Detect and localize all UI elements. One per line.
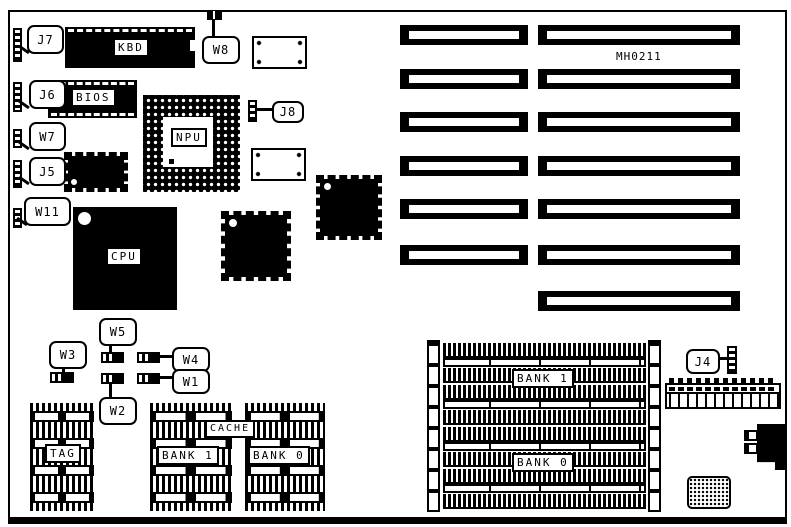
isa-slot-long-1: [538, 25, 740, 45]
memory-bank0-label-text: BANK 0: [517, 457, 569, 468]
cache-label-text: CACHE: [210, 424, 250, 434]
kbd-label: KBD: [113, 38, 149, 57]
callout-j7-label: J7: [37, 34, 53, 46]
isa-slot-short-3: [400, 112, 528, 132]
leader-w8: [212, 19, 215, 37]
cache-bank1-label: BANK 1: [157, 446, 219, 465]
simm-rail-left: [427, 340, 440, 512]
leader-j8: [257, 108, 273, 111]
cache-bank1-label-text: BANK 1: [162, 450, 214, 461]
callout-j4: J4: [686, 349, 720, 374]
memory-bank0-label: BANK 0: [512, 453, 574, 472]
callout-w7-label: W7: [39, 131, 55, 143]
pin-header-j6: [13, 82, 22, 112]
isa-slot-long-3: [538, 112, 740, 132]
memory-bank1-label: BANK 1: [512, 369, 574, 388]
npu-label: NPU: [171, 128, 207, 147]
callout-j4-label: J4: [695, 356, 711, 368]
cache-bank0-label-text: BANK 0: [253, 450, 305, 461]
npu-label-text: NPU: [176, 132, 202, 143]
simm-socket-5: [443, 427, 646, 442]
oscillator-2: [251, 148, 306, 181]
callout-w2-label: W2: [110, 405, 126, 417]
callout-j8: J8: [272, 101, 304, 123]
speaker-component: [687, 476, 731, 509]
callout-j7: J7: [27, 25, 64, 54]
callout-w2: W2: [99, 397, 137, 425]
din-tab-2: [744, 443, 758, 454]
callout-w11-label: W11: [35, 206, 60, 218]
oscillator-1: [252, 36, 307, 69]
simm-module-row-1: [443, 358, 646, 367]
jumper-w2: [101, 373, 124, 384]
pin-header-j5: [13, 160, 22, 188]
bios-label: BIOS: [71, 88, 116, 107]
isa-slot-long-2: [538, 69, 740, 89]
qfp-chip-2: [221, 211, 291, 281]
kbd-label-text: KBD: [118, 42, 144, 53]
dip-socket-tag-1: [30, 403, 94, 430]
cpu-label-text: CPU: [111, 251, 137, 262]
qfp-chip-3: [316, 175, 382, 240]
isa-slot-short-1: [400, 25, 528, 45]
dip-socket-tag-4: [30, 484, 94, 511]
cache-bank0-label: BANK 0: [248, 446, 310, 465]
cpu-label: CPU: [106, 247, 142, 266]
power-connector: [665, 383, 781, 409]
callout-w7: W7: [29, 122, 66, 151]
isa-slot-long-4: [538, 156, 740, 176]
leader-w1: [158, 376, 173, 379]
callout-w8-label: W8: [213, 44, 229, 56]
isa-slot-short-6: [400, 245, 528, 265]
leader-w4: [158, 355, 173, 358]
simm-socket-8: [443, 494, 646, 509]
leader-w2: [109, 383, 112, 398]
tag-label-text: TAG: [50, 448, 76, 459]
pin-header-j8: [248, 100, 257, 122]
qfp-chip-1-pin1-dot: [71, 179, 77, 185]
simm-module-row-2: [443, 400, 646, 409]
callout-w5-label: W5: [110, 326, 126, 338]
callout-w8: W8: [202, 36, 240, 64]
callout-w1: W1: [172, 369, 210, 394]
tag-label: TAG: [45, 444, 81, 463]
callout-j5: J5: [29, 157, 66, 186]
isa-slot-long-7: [538, 291, 740, 311]
callout-w5: W5: [99, 318, 137, 346]
din-tab-1: [744, 430, 758, 441]
callout-j5-label: J5: [39, 166, 55, 178]
callout-j8-label: J8: [280, 106, 296, 118]
callout-w4-label: W4: [183, 354, 199, 366]
cache-label: CACHE: [205, 420, 255, 438]
isa-slot-short-2: [400, 69, 528, 89]
callout-w3: W3: [49, 341, 87, 369]
board-model-label: MH0211: [616, 51, 662, 62]
simm-socket-1: [443, 343, 646, 358]
dip-socket-bank0-4: [245, 484, 325, 511]
isa-slot-short-5: [400, 199, 528, 219]
simm-rail-right: [648, 340, 661, 512]
npu-pin1-mark: [169, 159, 174, 164]
isa-slot-long-5: [538, 199, 740, 219]
cpu-pin1-dot: [78, 212, 91, 225]
jumper-w5: [101, 352, 124, 363]
simm-module-row-4: [443, 484, 646, 493]
dip-socket-bank0-1: [245, 403, 325, 430]
qfp-chip-1: [64, 152, 128, 192]
callout-w1-label: W1: [183, 376, 199, 388]
callout-j6-label: J6: [39, 89, 55, 101]
simm-socket-4: [443, 410, 646, 425]
qfp-chip-2-pin1-dot: [229, 219, 237, 227]
callout-w3-label: W3: [60, 349, 76, 361]
motherboard-diagram: J7 J6 W7 J5 W11 W8 J8 W3 W5 W2 W4 W1 J4 …: [0, 0, 791, 527]
kbd-chip-notch: [190, 40, 195, 51]
pin-header-j4: [727, 346, 737, 374]
callout-w11: W11: [24, 197, 71, 226]
dip-socket-bank1-4: [150, 484, 232, 511]
bios-label-text: BIOS: [76, 92, 111, 103]
simm-module-row-3: [443, 442, 646, 451]
jumper-w4: [137, 352, 160, 363]
memory-bank1-label-text: BANK 1: [517, 373, 569, 384]
jumper-w3: [50, 372, 74, 383]
qfp-chip-3-pin1-dot: [324, 183, 331, 190]
callout-j6: J6: [29, 80, 66, 109]
isa-slot-short-4: [400, 156, 528, 176]
isa-slot-long-6: [538, 245, 740, 265]
jumper-w1: [137, 373, 160, 384]
